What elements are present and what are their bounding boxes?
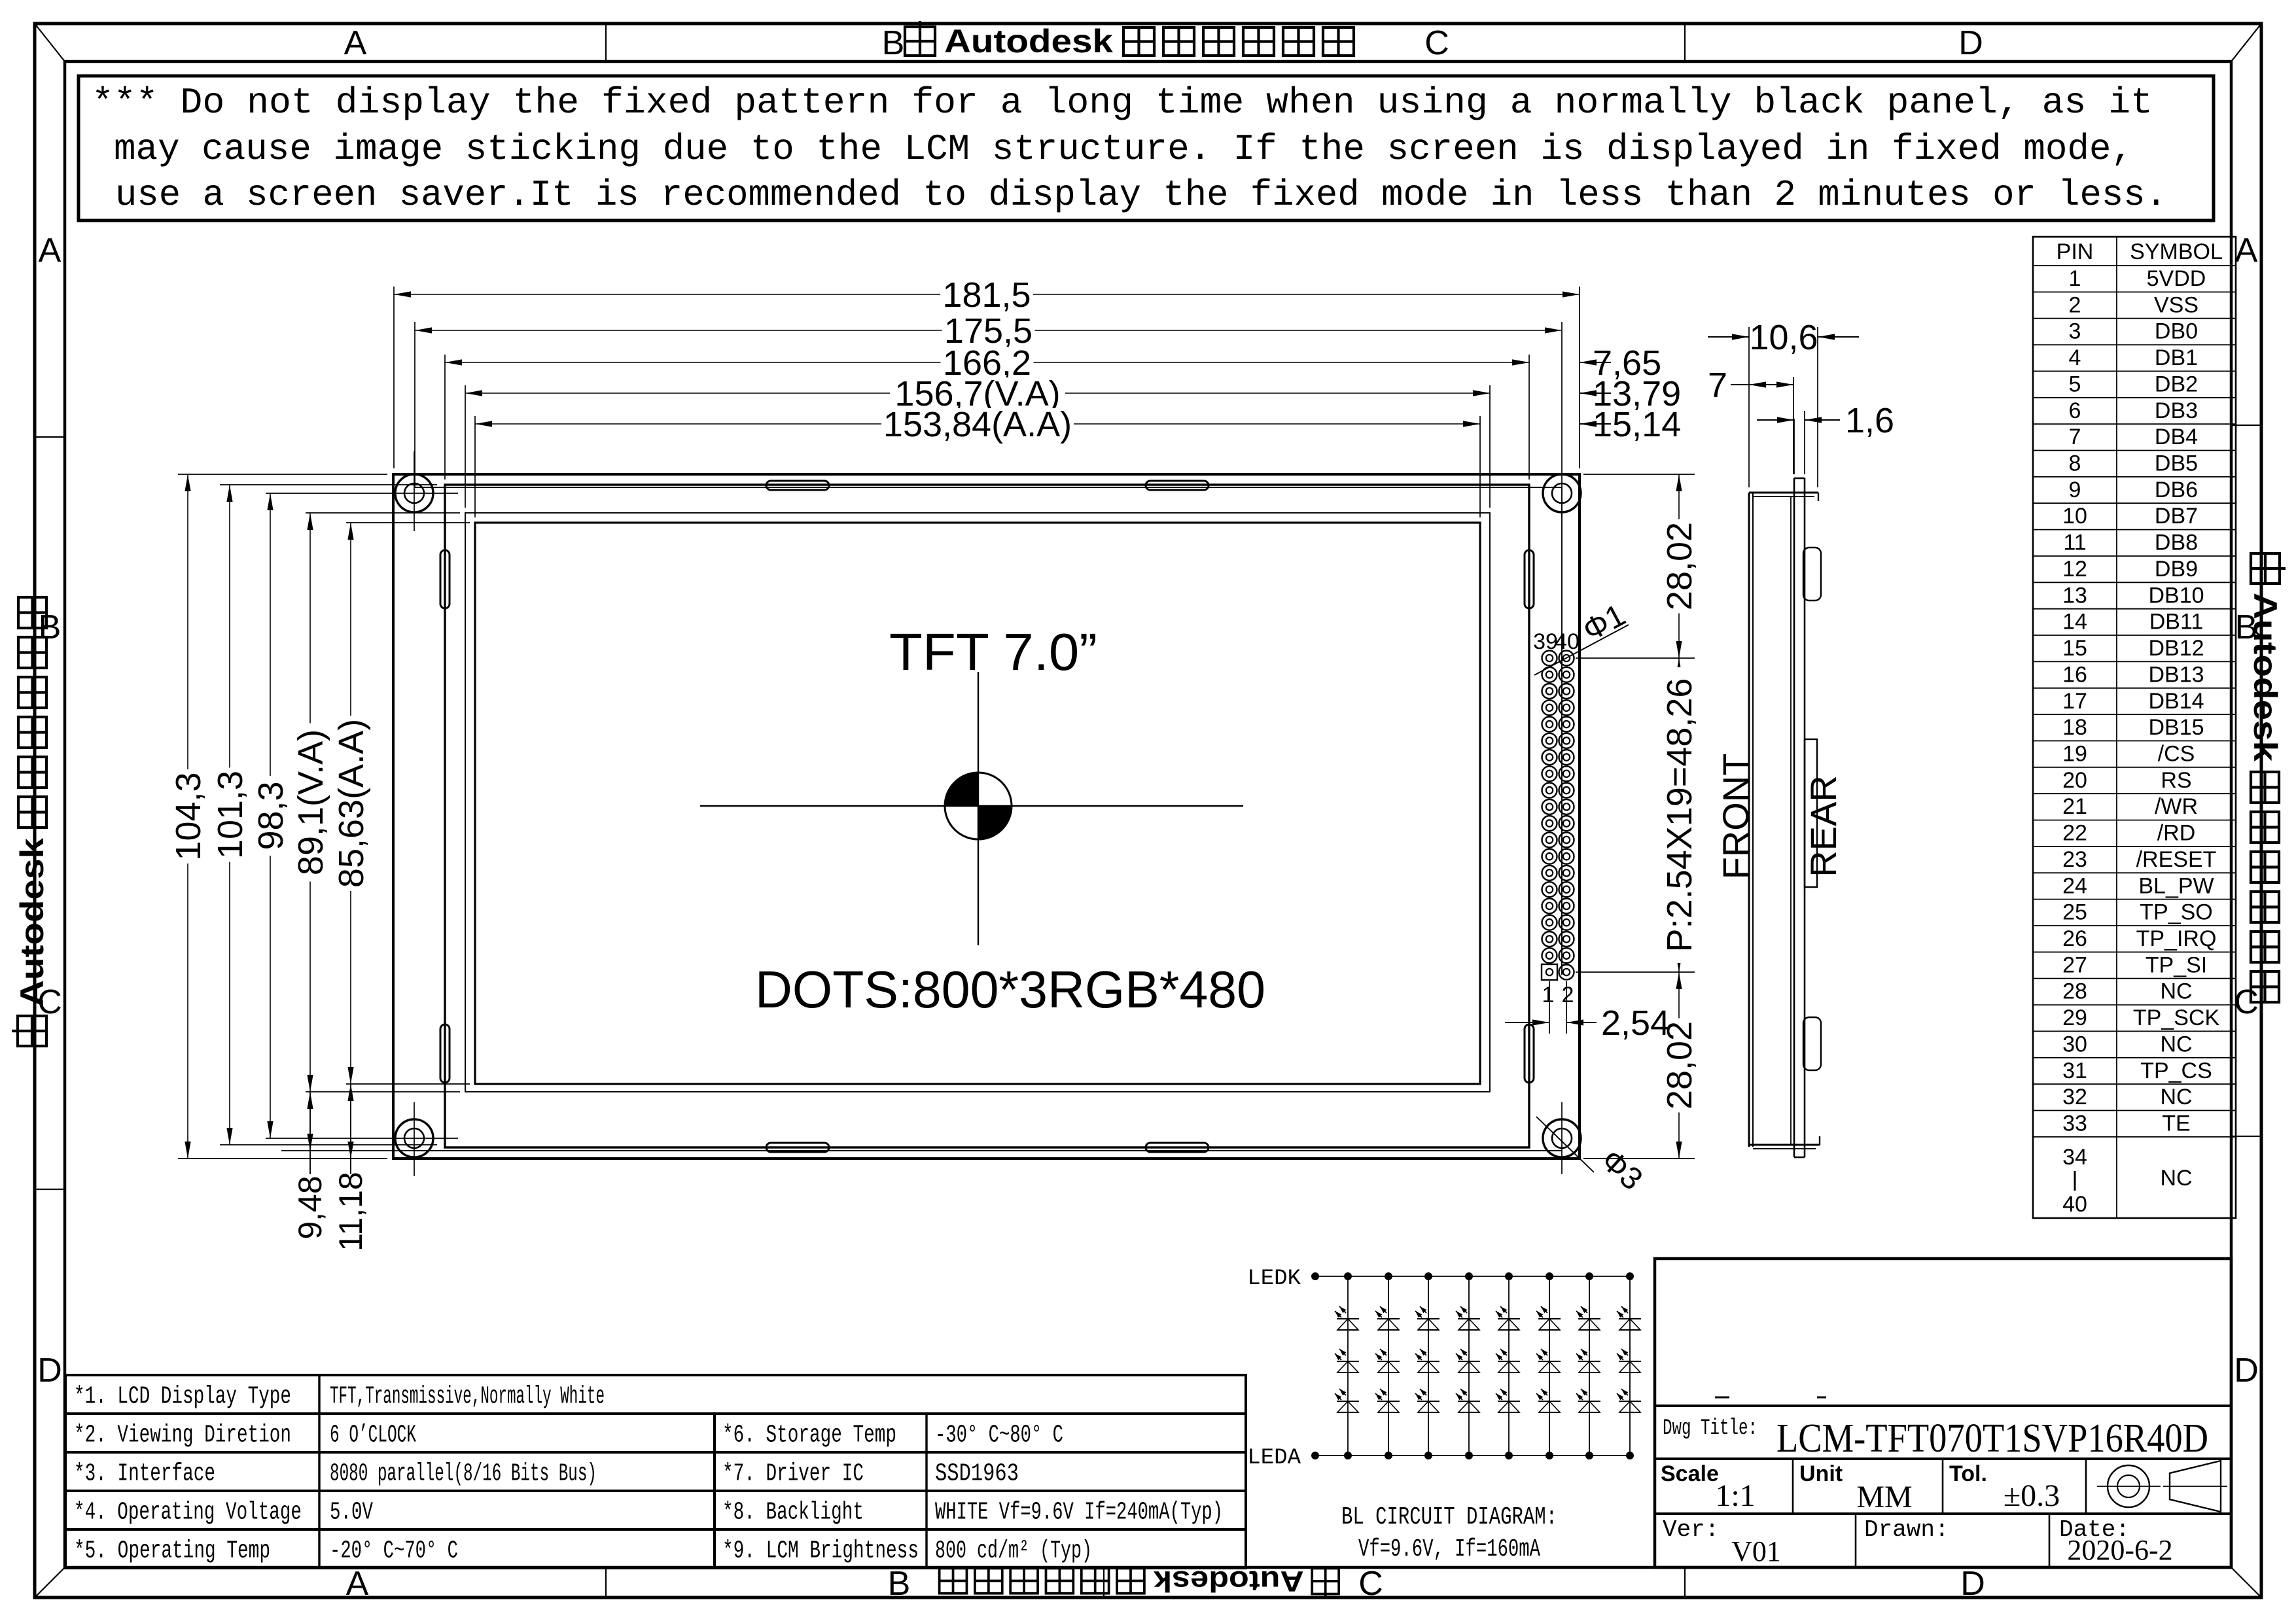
svg-text:5: 5	[2069, 372, 2081, 396]
svg-text:SYMBOL: SYMBOL	[2130, 239, 2223, 264]
svg-text:D: D	[2234, 1352, 2259, 1389]
svg-text:*7. Driver IC: *7. Driver IC	[722, 1460, 864, 1488]
svg-text:98,3: 98,3	[251, 781, 291, 850]
svg-text:SSD1963: SSD1963	[935, 1460, 1019, 1488]
svg-text:TP_SO: TP_SO	[2140, 900, 2212, 925]
svg-text:DB2: DB2	[2155, 372, 2198, 396]
svg-text:A: A	[2235, 232, 2258, 270]
svg-text:9,48: 9,48	[292, 1176, 328, 1239]
svg-text:Unit: Unit	[1799, 1461, 1843, 1486]
svg-text:A: A	[346, 1565, 369, 1603]
svg-text:5VDD: 5VDD	[2147, 266, 2206, 291]
svg-text:9: 9	[2069, 478, 2081, 502]
svg-text:40: 40	[2062, 1192, 2087, 1217]
svg-text:*1. LCD Display Type: *1. LCD Display Type	[74, 1383, 291, 1411]
svg-text:4: 4	[2069, 345, 2081, 370]
svg-text:NC: NC	[2160, 979, 2192, 1004]
svg-text:DB15: DB15	[2148, 715, 2204, 740]
svg-text:Scale: Scale	[1661, 1461, 1719, 1486]
svg-text:101,3: 101,3	[211, 771, 250, 859]
svg-text:NC: NC	[2160, 1166, 2192, 1191]
svg-text:25: 25	[2062, 900, 2087, 925]
svg-text:104,3: 104,3	[169, 772, 208, 860]
svg-text:2: 2	[2069, 292, 2081, 317]
svg-text:Drawn:: Drawn:	[1864, 1516, 1949, 1543]
svg-text:A: A	[39, 232, 62, 270]
svg-text:*** Do not display the fixed p: *** Do not display the fixed pattern for…	[92, 82, 2153, 124]
svg-text:Tol.: Tol.	[1949, 1461, 1987, 1486]
svg-text:LCM-TFT070T1SVP16R40D: LCM-TFT070T1SVP16R40D	[1776, 1416, 2208, 1461]
svg-text:15,14: 15,14	[1593, 405, 1681, 444]
svg-text:LEDA: LEDA	[1247, 1446, 1301, 1471]
svg-text:13: 13	[2062, 583, 2087, 608]
svg-text:22: 22	[2062, 821, 2087, 846]
svg-text:15: 15	[2062, 636, 2087, 661]
svg-text:/RD: /RD	[2157, 821, 2196, 846]
svg-text:P:2.54X19=48,26: P:2.54X19=48,26	[1660, 678, 1699, 952]
svg-text:DB7: DB7	[2155, 504, 2198, 529]
svg-text:40: 40	[1555, 629, 1580, 654]
svg-text:DOTS:800*3RGB*480: DOTS:800*3RGB*480	[755, 960, 1265, 1019]
svg-text:TP_SCK: TP_SCK	[2133, 1005, 2220, 1030]
svg-text:TP_CS: TP_CS	[2140, 1058, 2212, 1083]
svg-text:/RESET: /RESET	[2136, 847, 2217, 872]
svg-text:19: 19	[2062, 742, 2087, 767]
svg-text:REAR: REAR	[1803, 775, 1844, 877]
svg-text:800 cd/m² (Typ): 800 cd/m² (Typ)	[935, 1537, 1092, 1565]
svg-text:29: 29	[2062, 1005, 2087, 1030]
svg-text:89,1(V.A): 89,1(V.A)	[291, 729, 330, 875]
svg-text:DB6: DB6	[2155, 478, 2198, 502]
svg-text:C: C	[1424, 24, 1449, 62]
svg-text:DB13: DB13	[2148, 662, 2204, 687]
svg-text:32: 32	[2062, 1085, 2087, 1109]
svg-text:BL CIRCUIT DIAGRAM:: BL CIRCUIT DIAGRAM:	[1341, 1503, 1557, 1531]
svg-text:/CS: /CS	[2158, 742, 2195, 767]
svg-text:31: 31	[2062, 1058, 2087, 1083]
svg-text:1,6: 1,6	[1845, 401, 1894, 440]
svg-text:Ver:: Ver:	[1663, 1516, 1719, 1543]
svg-text:33: 33	[2062, 1111, 2087, 1136]
svg-text:*8. Backlight: *8. Backlight	[722, 1499, 864, 1527]
svg-text:DB5: DB5	[2155, 451, 2198, 476]
svg-text:TE: TE	[2162, 1111, 2190, 1136]
svg-text:VSS: VSS	[2154, 292, 2199, 317]
svg-text:7: 7	[1708, 366, 1727, 405]
svg-text:6 O’CLOCK: 6 O’CLOCK	[330, 1422, 416, 1450]
svg-text:10,6: 10,6	[1749, 318, 1818, 357]
svg-text:1:1: 1:1	[1715, 1478, 1755, 1513]
svg-text:10: 10	[2062, 504, 2087, 529]
svg-text:DB4: DB4	[2155, 425, 2198, 449]
svg-text:TP_SI: TP_SI	[2146, 952, 2207, 977]
svg-text:26: 26	[2062, 926, 2087, 951]
svg-text:*5. Operating Temp: *5. Operating Temp	[74, 1537, 270, 1565]
svg-text:Dwg Title:: Dwg Title:	[1663, 1416, 1757, 1441]
svg-text:C: C	[1358, 1565, 1383, 1603]
svg-text:21: 21	[2062, 794, 2087, 819]
svg-text:use a screen saver.It is recom: use a screen saver.It is recommended to …	[115, 174, 2167, 216]
svg-text:20: 20	[2062, 768, 2087, 793]
svg-text:2,54: 2,54	[1601, 1003, 1670, 1043]
svg-text:TP_IRQ: TP_IRQ	[2136, 926, 2217, 951]
svg-text:PIN: PIN	[2057, 239, 2094, 264]
svg-text:27: 27	[2062, 952, 2087, 977]
svg-text:1: 1	[1542, 983, 1555, 1007]
svg-text:WHITE Vf=9.6V If=240mA(Typ): WHITE Vf=9.6V If=240mA(Typ)	[935, 1499, 1223, 1527]
svg-text:18: 18	[2062, 715, 2087, 740]
svg-text:RS: RS	[2161, 768, 2191, 793]
svg-text:17: 17	[2062, 689, 2087, 714]
svg-text:DB12: DB12	[2148, 636, 2204, 661]
svg-text:DB9: DB9	[2155, 557, 2198, 582]
svg-text:1: 1	[2069, 266, 2081, 291]
svg-text:TFT 7.0”: TFT 7.0”	[889, 623, 1097, 681]
svg-text:181,5: 181,5	[942, 275, 1031, 315]
svg-text:DB0: DB0	[2155, 319, 2198, 344]
svg-text:153,84(A.A): 153,84(A.A)	[883, 405, 1072, 444]
svg-text:DB3: DB3	[2155, 398, 2198, 423]
svg-text:*4. Operating Voltage: *4. Operating Voltage	[74, 1499, 302, 1527]
svg-text:*9. LCM Brightness: *9. LCM Brightness	[722, 1537, 919, 1565]
svg-text:7: 7	[2069, 425, 2081, 449]
svg-text:30: 30	[2062, 1032, 2087, 1056]
svg-text:34: 34	[2062, 1145, 2087, 1170]
svg-text:-30° C~80° C: -30° C~80° C	[935, 1422, 1063, 1450]
svg-text:V01: V01	[1731, 1535, 1781, 1567]
svg-text:DB1: DB1	[2155, 345, 2198, 370]
svg-text:16: 16	[2062, 662, 2087, 687]
svg-text:BL_PW: BL_PW	[2138, 873, 2214, 898]
svg-text:NC: NC	[2160, 1085, 2192, 1109]
svg-text:8: 8	[2069, 451, 2081, 476]
svg-text:6: 6	[2069, 398, 2081, 423]
svg-text:LEDK: LEDK	[1247, 1266, 1301, 1291]
svg-text:5.0V: 5.0V	[330, 1499, 373, 1527]
svg-text:DB11: DB11	[2149, 610, 2204, 635]
svg-text:85,63(A.A): 85,63(A.A)	[332, 719, 371, 888]
svg-text:DB10: DB10	[2148, 583, 2204, 608]
svg-text:11: 11	[2063, 531, 2086, 555]
svg-text:D: D	[37, 1352, 62, 1389]
svg-text:D: D	[1960, 1565, 1985, 1603]
svg-text:*3. Interface: *3. Interface	[74, 1460, 215, 1488]
svg-text:2020-6-2: 2020-6-2	[2067, 1534, 2172, 1566]
svg-text:12: 12	[2062, 557, 2087, 582]
svg-text:Vf=9.6V, If=160mA: Vf=9.6V, If=160mA	[1358, 1535, 1540, 1563]
svg-text:B: B	[888, 1565, 911, 1603]
svg-text:DB14: DB14	[2148, 689, 2204, 714]
svg-text:-20° C~70° C: -20° C~70° C	[330, 1537, 458, 1565]
svg-text:14: 14	[2062, 610, 2087, 635]
svg-text:*2. Viewing Diretion: *2. Viewing Diretion	[74, 1422, 291, 1450]
svg-text:A: A	[344, 24, 367, 62]
svg-text:FRONT: FRONT	[1715, 754, 1756, 880]
svg-text:28,02: 28,02	[1660, 522, 1699, 610]
svg-text:24: 24	[2062, 873, 2087, 898]
svg-text:may cause image sticking due t: may cause image sticking due to the LCM …	[114, 128, 2133, 170]
svg-text:B: B	[882, 24, 905, 62]
svg-text:±0.3: ±0.3	[2004, 1478, 2060, 1513]
svg-text:28: 28	[2062, 979, 2087, 1004]
svg-text:MM: MM	[1856, 1480, 1912, 1514]
svg-text:2: 2	[1562, 983, 1574, 1007]
svg-text:23: 23	[2062, 847, 2087, 872]
svg-text:11,18: 11,18	[332, 1172, 369, 1251]
svg-text:D: D	[1958, 24, 1983, 62]
svg-text:/WR: /WR	[2155, 794, 2198, 819]
svg-text:8080 parallel(8/16 Bits Bus): 8080 parallel(8/16 Bits Bus)	[330, 1460, 597, 1488]
svg-text:*6. Storage Temp: *6. Storage Temp	[722, 1422, 896, 1450]
svg-text:NC: NC	[2160, 1032, 2192, 1056]
svg-text:DB8: DB8	[2155, 531, 2198, 555]
svg-text:TFT,Transmissive,Normally Whit: TFT,Transmissive,Normally White	[330, 1383, 605, 1411]
svg-text:3: 3	[2069, 319, 2081, 344]
